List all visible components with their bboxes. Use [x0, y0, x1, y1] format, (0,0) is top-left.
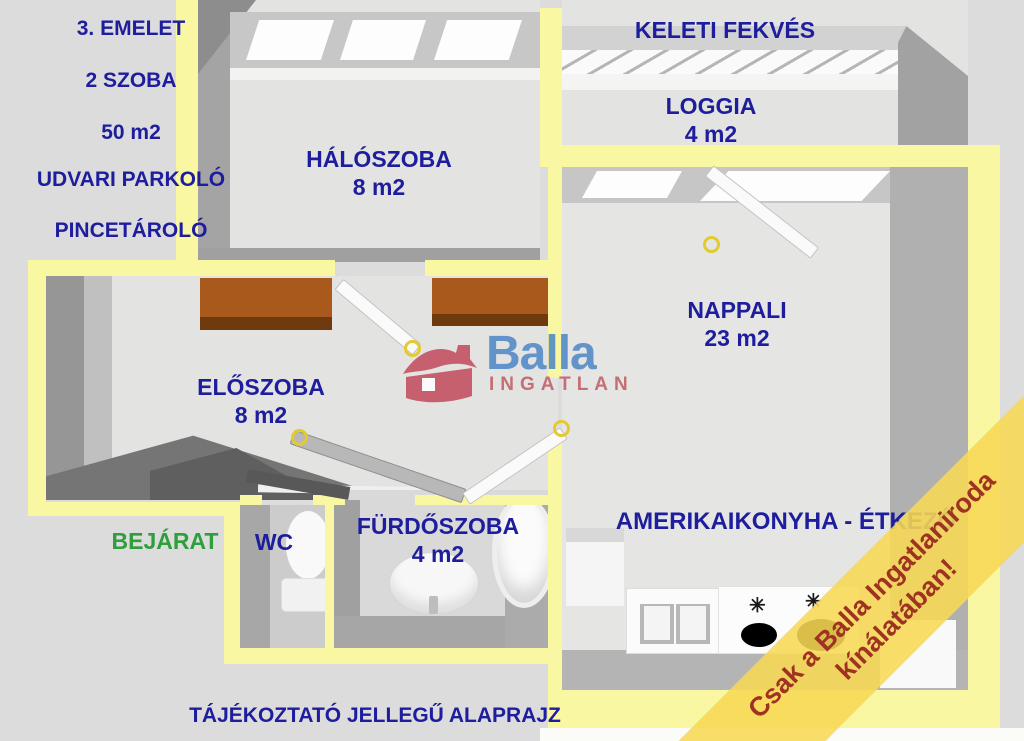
wall [224, 648, 560, 664]
orientation-label: KELETI FEKVÉS [635, 16, 815, 44]
room-label-nappali: NAPPALI23 m2 [687, 296, 786, 352]
room-label-haloszoba: HÁLÓSZOBA8 m2 [306, 145, 452, 201]
info-line: 50 m2 [101, 120, 161, 146]
wall [28, 260, 335, 276]
disclaimer-text: TÁJÉKOZTATÓ JELLEGŰ ALAPRAJZ [189, 703, 561, 729]
fridge-icon [566, 528, 624, 606]
room-label-furdoszoba: FÜRDŐSZOBA4 m2 [357, 512, 519, 568]
info-line: UDVARI PARKOLÓ [37, 167, 225, 193]
wardrobe [432, 278, 556, 326]
room-label-loggia: LOGGIA4 m2 [666, 92, 757, 148]
wall [425, 260, 558, 276]
info-line: 3. EMELET [77, 16, 186, 42]
wall [325, 500, 334, 650]
bedroom-window-sill [230, 68, 540, 80]
entrance-label: BEJÁRAT [112, 527, 219, 555]
wall [540, 8, 562, 148]
burner-icon [741, 623, 777, 647]
wall [240, 495, 262, 505]
logo-house-icon [400, 340, 480, 406]
hallway-left-wall [46, 276, 84, 500]
info-line: 2 SZOBA [85, 68, 176, 94]
room-label-wc: WC [255, 528, 293, 556]
loggia-slab [562, 74, 906, 90]
wall [415, 495, 558, 505]
loggia-railing [562, 50, 906, 74]
sink-basin [676, 604, 710, 644]
room-label-eloszoba: ELŐSZOBA8 m2 [197, 373, 325, 429]
door-hinge-icon [553, 420, 570, 437]
wardrobe [200, 278, 332, 330]
floorplan-canvas: ✳ ✳ 3. EMELET [0, 0, 1024, 741]
logo-division-text: INGATLAN [489, 374, 634, 396]
sink-basin [640, 604, 674, 644]
wall [968, 145, 1000, 690]
bedroom-window [434, 20, 522, 60]
kitchen-sink-icon [626, 588, 720, 654]
wall [540, 145, 968, 167]
livingroom-window [582, 171, 682, 198]
logo-brand-text: Balla [486, 326, 596, 381]
door-hinge-icon [703, 236, 720, 253]
bedroom-window [246, 20, 334, 60]
bedroom-window [340, 20, 426, 60]
wall [28, 260, 46, 516]
balla-logo: Balla INGATLAN [400, 334, 680, 412]
wall [224, 502, 240, 664]
wall [548, 442, 562, 690]
door-hinge-icon [291, 429, 308, 446]
wall [28, 502, 228, 516]
faucet-icon [429, 596, 438, 614]
info-line: PINCETÁROLÓ [55, 218, 208, 244]
burner-flame-icon: ✳ [749, 593, 766, 618]
